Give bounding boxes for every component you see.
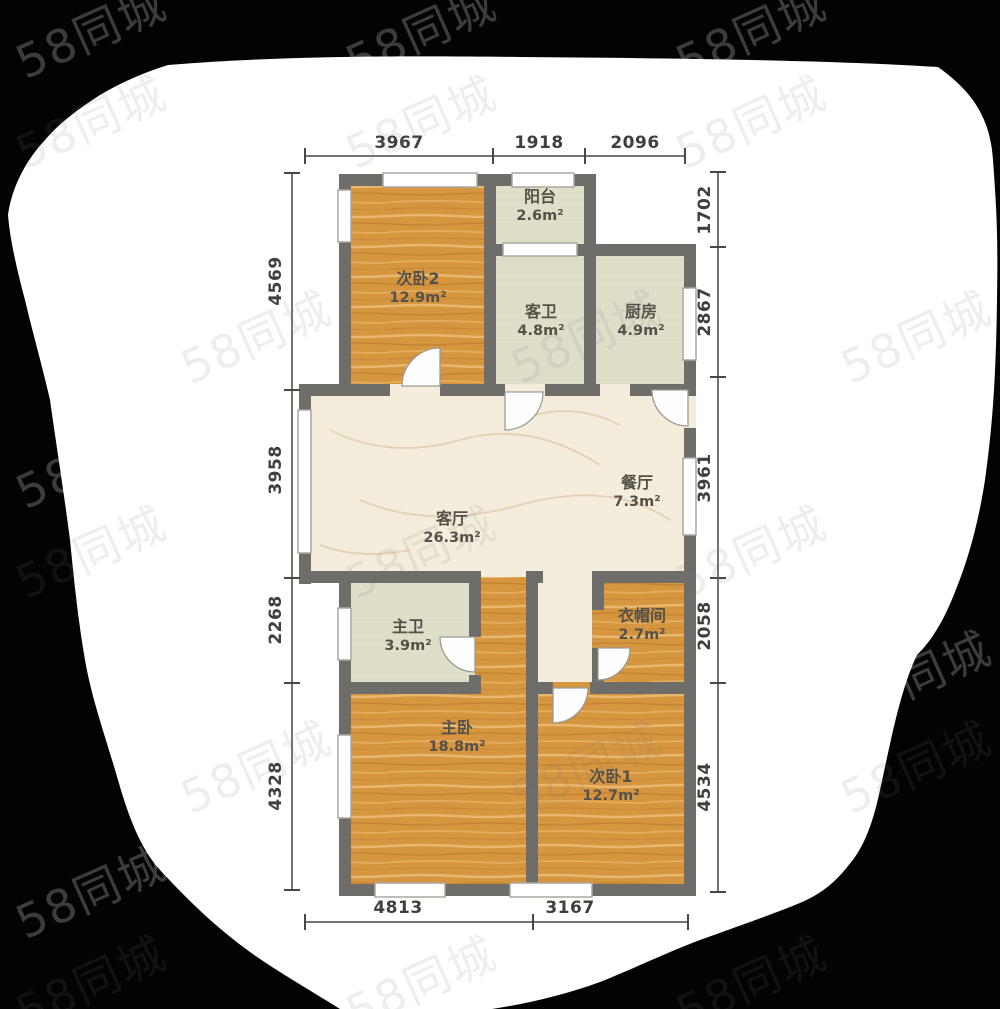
dimension-top-3: 2096 — [610, 133, 659, 153]
dimension-top-1: 3967 — [374, 133, 423, 153]
floorplan-screenshot: 58同城58同城58同城58同城58同城58同城58同城58同城58同城58同城… — [0, 0, 1000, 1009]
dimension-bottom-1: 4813 — [373, 898, 422, 918]
room-label-balcony: 阳台 2.6m² — [516, 187, 563, 225]
dimension-right-5: 4534 — [695, 762, 715, 811]
room-name: 厨房 — [617, 302, 664, 322]
room-name: 客厅 — [423, 509, 480, 529]
room-area: 26.3m² — [423, 529, 480, 547]
dimension-right-2: 2867 — [695, 287, 715, 336]
dimension-left-2: 3958 — [266, 445, 286, 494]
room-label-guest-bathroom: 客卫 4.8m² — [517, 302, 564, 340]
room-area: 2.7m² — [618, 626, 666, 644]
room-area: 4.8m² — [517, 322, 564, 340]
room-area: 12.9m² — [389, 289, 446, 307]
dimension-left-1: 4569 — [266, 256, 286, 305]
room-name: 主卫 — [384, 617, 431, 637]
room-label-dining-room: 餐厅 7.3m² — [613, 473, 660, 511]
dimension-right-1: 1702 — [695, 185, 715, 234]
room-name: 阳台 — [516, 187, 563, 207]
dimension-top-2: 1918 — [514, 133, 563, 153]
room-name: 衣帽间 — [618, 606, 666, 626]
dimension-left-4: 4328 — [266, 761, 286, 810]
room-label-kitchen: 厨房 4.9m² — [617, 302, 664, 340]
room-label-cloakroom: 衣帽间 2.7m² — [618, 606, 666, 644]
dimension-bottom-2: 3167 — [545, 898, 594, 918]
room-label-master-bedroom: 主卧 18.8m² — [428, 718, 485, 756]
room-name: 餐厅 — [613, 473, 660, 493]
room-area: 4.9m² — [617, 322, 664, 340]
room-label-bedroom-2: 次卧2 12.9m² — [389, 269, 446, 307]
label-layer: 阳台 2.6m² 次卧2 12.9m² 客卫 4.8m² 厨房 4.9m² 客厅… — [0, 0, 1000, 1009]
room-label-living-room: 客厅 26.3m² — [423, 509, 480, 547]
room-name: 主卧 — [428, 718, 485, 738]
room-name: 次卧1 — [582, 767, 639, 787]
room-area: 7.3m² — [613, 493, 660, 511]
room-area: 2.6m² — [516, 207, 563, 225]
room-label-master-bathroom: 主卫 3.9m² — [384, 617, 431, 655]
dimension-right-3: 3961 — [695, 453, 715, 502]
room-area: 12.7m² — [582, 787, 639, 805]
room-name: 次卧2 — [389, 269, 446, 289]
room-label-bedroom-1: 次卧1 12.7m² — [582, 767, 639, 805]
dimension-right-4: 2058 — [695, 601, 715, 650]
dimension-left-3: 2268 — [266, 595, 286, 644]
room-name: 客卫 — [517, 302, 564, 322]
room-area: 3.9m² — [384, 637, 431, 655]
room-area: 18.8m² — [428, 738, 485, 756]
